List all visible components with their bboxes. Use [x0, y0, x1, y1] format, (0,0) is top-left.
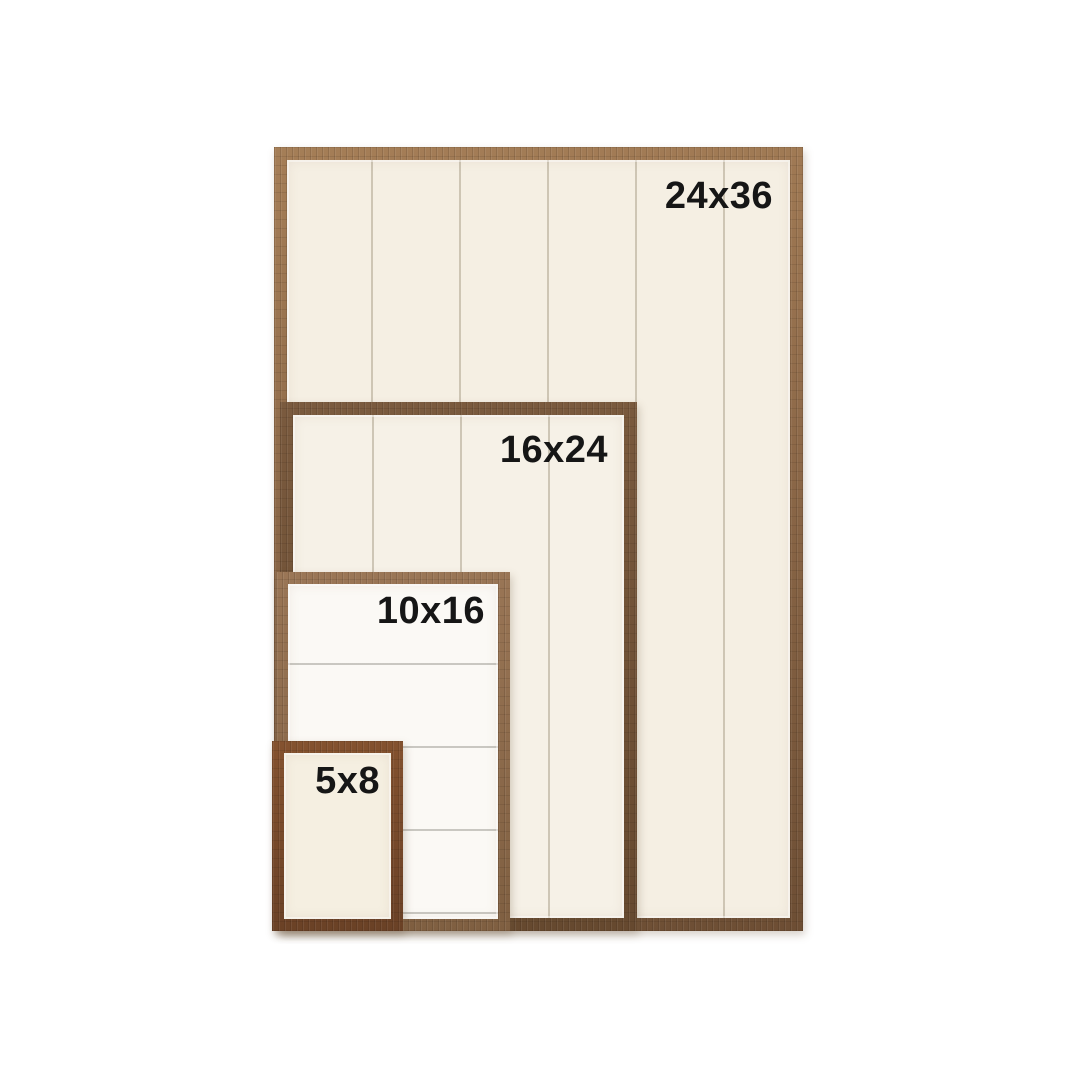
frame-10x16-size-label: 10x16	[377, 592, 485, 630]
frame-5x8-size-label: 5x8	[315, 762, 380, 800]
size-comparison-canvas: 24x36 16x24 10x16 5x8	[0, 0, 1080, 1080]
frame-24x36-size-label: 24x36	[665, 177, 773, 215]
frame-5x8-interior: 5x8	[284, 753, 391, 919]
frame-16x24-size-label: 16x24	[500, 431, 608, 469]
frame-5x8: 5x8	[272, 741, 403, 931]
